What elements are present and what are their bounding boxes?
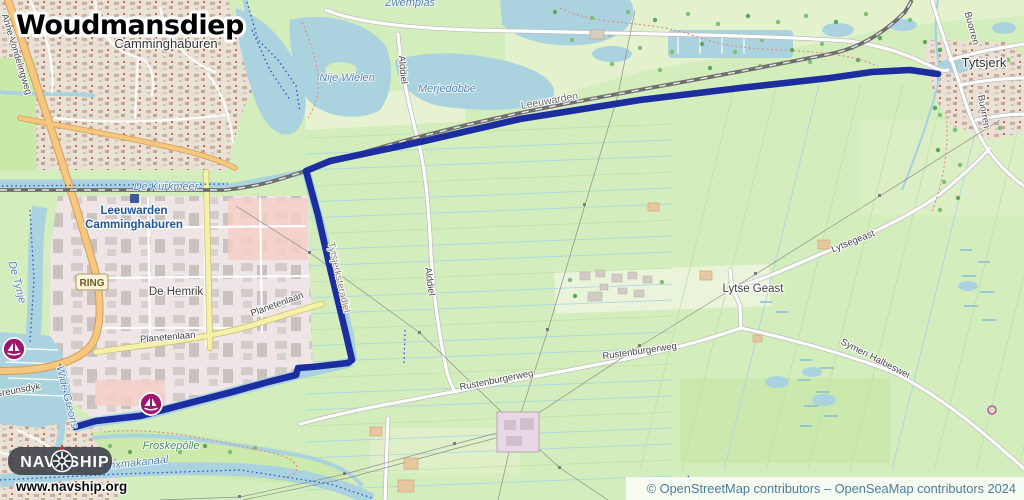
map-canvas[interactable]: RING CamminghaburenTytsjerkLytse GeastDe…	[0, 0, 1024, 500]
ring-badge: RING	[76, 274, 108, 290]
map-label: De Hemrik	[149, 286, 204, 298]
logo-ship-text: SHIP	[68, 454, 109, 471]
attribution-bar: © OpenStreetMap contributors – OpenSeaMa…	[626, 477, 1024, 500]
map-label: Merjedobbe	[418, 83, 476, 95]
substation	[497, 412, 539, 452]
map-label: Froskepôlle	[143, 440, 200, 452]
map-label: Nije Wielen	[319, 72, 375, 84]
ring-badge-label: RING	[80, 278, 105, 289]
map-viewport[interactable]: RING CamminghaburenTytsjerkLytse GeastDe…	[0, 0, 1024, 500]
attribution-text: © OpenStreetMap contributors – OpenSeaMa…	[647, 481, 1016, 496]
marina-icon	[3, 338, 25, 360]
map-label: Tytsjerk	[962, 55, 1007, 70]
map-label: Zwemplas	[384, 0, 436, 9]
page-title: Woudmansdiep	[16, 10, 244, 41]
map-label: Leeuwarden	[100, 205, 167, 217]
marina-icon	[140, 393, 162, 415]
site-url[interactable]: www.navship.org	[15, 479, 127, 494]
logo-nav-text: NAV	[20, 454, 56, 471]
map-label: De Kúrkmeer	[134, 181, 200, 193]
map-label: Lytse Geast	[723, 283, 785, 295]
map-label: Camminghaburen	[85, 219, 183, 231]
navship-logo[interactable]: NAV SHIP	[8, 444, 112, 475]
train-station-marker	[130, 194, 139, 203]
